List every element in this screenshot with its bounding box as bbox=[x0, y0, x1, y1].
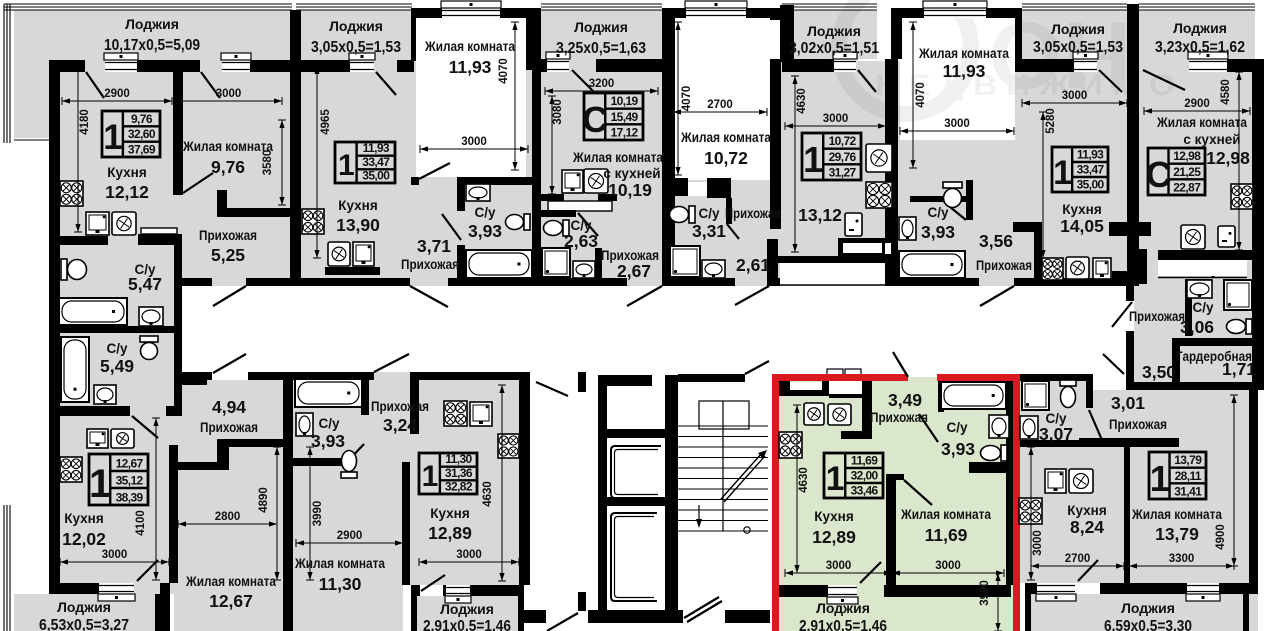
svg-text:Кухня: Кухня bbox=[107, 165, 146, 180]
svg-text:1: 1 bbox=[826, 460, 845, 498]
svg-text:3,06: 3,06 bbox=[1180, 317, 1214, 337]
svg-text:4630: 4630 bbox=[482, 481, 494, 507]
svg-text:С/у: С/у bbox=[946, 420, 968, 435]
svg-text:12,12: 12,12 bbox=[105, 182, 149, 202]
svg-text:Лоджия: Лоджия bbox=[574, 19, 628, 35]
svg-text:32,60: 32,60 bbox=[128, 127, 156, 141]
svg-text:33,47: 33,47 bbox=[1077, 163, 1105, 177]
svg-text:11,93: 11,93 bbox=[943, 61, 986, 81]
svg-text:3200: 3200 bbox=[589, 78, 615, 90]
svg-text:3990: 3990 bbox=[312, 501, 324, 527]
svg-text:2900: 2900 bbox=[1184, 98, 1210, 110]
svg-text:11,30: 11,30 bbox=[445, 452, 472, 466]
svg-text:11,93: 11,93 bbox=[1077, 148, 1104, 162]
svg-text:2800: 2800 bbox=[215, 511, 241, 523]
svg-text:Прихожая: Прихожая bbox=[1129, 309, 1185, 324]
svg-text:Прихожая: Прихожая bbox=[1109, 417, 1167, 432]
svg-text:Жилая комната: Жилая комната bbox=[918, 46, 1009, 61]
svg-text:4965: 4965 bbox=[320, 109, 332, 135]
svg-text:1: 1 bbox=[422, 460, 439, 493]
svg-text:5280: 5280 bbox=[1045, 108, 1057, 134]
svg-text:Лоджия: Лоджия bbox=[1121, 600, 1175, 616]
svg-text:Кухня: Кухня bbox=[1062, 202, 1101, 217]
svg-text:12,67: 12,67 bbox=[209, 591, 253, 611]
svg-text:3,93: 3,93 bbox=[921, 222, 955, 242]
svg-text:4630: 4630 bbox=[796, 88, 808, 114]
svg-text:11,93: 11,93 bbox=[363, 141, 390, 155]
svg-text:10,72: 10,72 bbox=[829, 134, 857, 148]
svg-text:3,49: 3,49 bbox=[888, 390, 922, 410]
svg-text:10,19: 10,19 bbox=[611, 94, 639, 108]
svg-text:32,00: 32,00 bbox=[851, 469, 879, 483]
svg-text:3,07: 3,07 bbox=[1039, 424, 1073, 444]
svg-text:Жилая комната: Жилая комната bbox=[185, 574, 276, 589]
svg-text:Прихожая: Прихожая bbox=[976, 258, 1032, 273]
svg-text:1: 1 bbox=[89, 462, 111, 506]
svg-text:С/у: С/у bbox=[474, 205, 496, 220]
svg-text:Прихожая: Прихожая bbox=[200, 420, 258, 435]
svg-text:5,49: 5,49 bbox=[100, 356, 134, 376]
svg-text:Жилая комната: Жилая комната bbox=[294, 556, 385, 571]
svg-text:3300: 3300 bbox=[1169, 553, 1195, 565]
svg-text:Кухня: Кухня bbox=[64, 511, 103, 526]
svg-text:2,91х0,5=1,46: 2,91х0,5=1,46 bbox=[423, 618, 511, 631]
svg-text:С/у: С/у bbox=[927, 205, 949, 220]
svg-text:Жилая комната: Жилая комната bbox=[424, 39, 515, 54]
svg-text:4900: 4900 bbox=[1215, 524, 1227, 550]
svg-text:3,05х0,5=1,53: 3,05х0,5=1,53 bbox=[311, 39, 401, 56]
svg-text:2,61: 2,61 bbox=[736, 255, 770, 275]
svg-text:Лоджия: Лоджия bbox=[807, 23, 861, 39]
svg-text:38,39: 38,39 bbox=[116, 491, 144, 505]
svg-text:35,00: 35,00 bbox=[362, 169, 390, 183]
svg-text:1: 1 bbox=[1053, 154, 1072, 192]
svg-text:4,94: 4,94 bbox=[212, 397, 246, 417]
svg-text:2700: 2700 bbox=[1065, 553, 1091, 565]
svg-text:11,69: 11,69 bbox=[925, 525, 968, 545]
svg-text:Прихожая: Прихожая bbox=[870, 410, 928, 425]
svg-text:Жилая комната: Жилая комната bbox=[1156, 115, 1247, 130]
svg-text:С/у: С/у bbox=[318, 416, 340, 431]
svg-text:Жилая комната: Жилая комната bbox=[680, 130, 771, 145]
svg-text:4070: 4070 bbox=[681, 86, 693, 112]
svg-text:3,24: 3,24 bbox=[383, 415, 417, 435]
svg-text:Прихожая: Прихожая bbox=[199, 228, 257, 243]
svg-text:31,36: 31,36 bbox=[445, 466, 473, 480]
svg-text:32,82: 32,82 bbox=[445, 480, 473, 494]
svg-text:28,11: 28,11 bbox=[1175, 469, 1202, 483]
svg-text:Кухня: Кухня bbox=[814, 509, 853, 524]
svg-text:3,93: 3,93 bbox=[311, 431, 345, 451]
svg-text:Прихожая: Прихожая bbox=[371, 399, 429, 414]
svg-text:Жилая комната: Жилая комната bbox=[572, 150, 663, 165]
svg-text:3000: 3000 bbox=[1062, 90, 1088, 102]
svg-text:12,89: 12,89 bbox=[428, 523, 472, 543]
svg-text:Лоджия: Лоджия bbox=[816, 600, 870, 616]
svg-text:31,27: 31,27 bbox=[829, 166, 857, 180]
svg-text:Лоджия: Лоджия bbox=[125, 16, 179, 32]
svg-text:с кухней: с кухней bbox=[603, 166, 660, 181]
svg-text:13,90: 13,90 bbox=[336, 215, 380, 235]
svg-text:21,25: 21,25 bbox=[1173, 165, 1201, 179]
svg-text:1: 1 bbox=[338, 149, 355, 182]
svg-text:13,12: 13,12 bbox=[798, 205, 842, 225]
svg-text:10,72: 10,72 bbox=[704, 148, 748, 168]
svg-text:6,59х0,5=3,30: 6,59х0,5=3,30 bbox=[1104, 618, 1192, 631]
svg-text:С: С bbox=[582, 99, 608, 140]
svg-text:3,50: 3,50 bbox=[1142, 362, 1176, 382]
svg-text:С/у: С/у bbox=[698, 206, 720, 221]
svg-text:1: 1 bbox=[803, 139, 823, 180]
svg-text:3000: 3000 bbox=[1032, 530, 1044, 556]
svg-text:4630: 4630 bbox=[798, 467, 810, 493]
svg-text:13,79: 13,79 bbox=[1155, 524, 1199, 544]
svg-text:2,63: 2,63 bbox=[564, 231, 598, 251]
svg-text:5,25: 5,25 bbox=[211, 245, 245, 265]
svg-text:Прихожая: Прихожая bbox=[401, 257, 459, 272]
svg-text:4100: 4100 bbox=[135, 510, 147, 536]
svg-text:Лоджия: Лоджия bbox=[329, 18, 383, 34]
svg-text:3,93: 3,93 bbox=[468, 221, 502, 241]
svg-text:10,17х0,5=5,09: 10,17х0,5=5,09 bbox=[104, 37, 200, 54]
svg-text:Лоджия: Лоджия bbox=[1173, 20, 1227, 36]
svg-text:Кухня: Кухня bbox=[430, 506, 469, 521]
svg-text:3,23х0,5=1,62: 3,23х0,5=1,62 bbox=[1155, 39, 1245, 56]
svg-text:С/у: С/у bbox=[1192, 300, 1214, 315]
svg-text:3000: 3000 bbox=[216, 88, 242, 100]
svg-text:6,53х0,5=3,27: 6,53х0,5=3,27 bbox=[39, 617, 129, 631]
svg-text:1: 1 bbox=[1150, 458, 1170, 499]
svg-text:33,47: 33,47 bbox=[362, 155, 390, 169]
svg-text:4580: 4580 bbox=[1220, 79, 1232, 105]
svg-text:13,79: 13,79 bbox=[1174, 453, 1202, 467]
svg-text:12,02: 12,02 bbox=[62, 529, 106, 549]
svg-text:3990: 3990 bbox=[979, 580, 991, 606]
svg-text:3000: 3000 bbox=[456, 549, 482, 561]
svg-text:Прихожая: Прихожая bbox=[725, 206, 781, 221]
svg-text:Лоджия: Лоджия bbox=[57, 599, 111, 615]
svg-text:3000: 3000 bbox=[823, 113, 849, 125]
svg-text:14,05: 14,05 bbox=[1060, 216, 1104, 236]
svg-text:Жилая комната: Жилая комната bbox=[900, 507, 991, 522]
svg-text:3,25х0,5=1,63: 3,25х0,5=1,63 bbox=[556, 40, 646, 57]
svg-text:4070: 4070 bbox=[498, 58, 510, 84]
svg-text:3,05х0,5=1,53: 3,05х0,5=1,53 bbox=[1033, 39, 1123, 56]
svg-text:3000: 3000 bbox=[102, 549, 128, 561]
svg-text:С/у: С/у bbox=[106, 341, 128, 356]
svg-text:2900: 2900 bbox=[104, 88, 130, 100]
svg-text:Кухня: Кухня bbox=[338, 198, 377, 213]
svg-text:Жилая комната: Жилая комната bbox=[1131, 507, 1222, 522]
svg-text:2,67: 2,67 bbox=[617, 261, 651, 281]
svg-text:3,56: 3,56 bbox=[979, 231, 1013, 251]
svg-text:35,00: 35,00 bbox=[1077, 178, 1105, 192]
svg-text:22,87: 22,87 bbox=[1173, 181, 1201, 195]
svg-text:С: С bbox=[1146, 154, 1172, 195]
svg-text:3,71: 3,71 bbox=[417, 236, 451, 256]
svg-text:с кухней: с кухней bbox=[1183, 132, 1240, 147]
svg-text:4070: 4070 bbox=[915, 82, 927, 108]
svg-text:3080: 3080 bbox=[552, 99, 564, 125]
svg-text:3000: 3000 bbox=[935, 560, 961, 572]
svg-text:11,69: 11,69 bbox=[851, 454, 878, 468]
svg-text:3000: 3000 bbox=[944, 118, 970, 130]
svg-text:4890: 4890 bbox=[258, 487, 270, 513]
svg-text:9,76: 9,76 bbox=[211, 157, 245, 177]
svg-text:2,91х0,5=1,46: 2,91х0,5=1,46 bbox=[799, 618, 887, 631]
svg-text:3,31: 3,31 bbox=[692, 221, 726, 241]
svg-text:Лоджия: Лоджия bbox=[1051, 21, 1105, 37]
svg-text:Жилая комната: Жилая комната bbox=[182, 139, 273, 154]
svg-text:29,76: 29,76 bbox=[829, 150, 857, 164]
svg-text:12,67: 12,67 bbox=[116, 457, 144, 471]
svg-text:31,41: 31,41 bbox=[1174, 485, 1202, 499]
svg-text:37,69: 37,69 bbox=[128, 143, 156, 157]
svg-text:4180: 4180 bbox=[79, 109, 91, 135]
svg-text:1,71: 1,71 bbox=[1222, 359, 1256, 379]
svg-text:3000: 3000 bbox=[461, 136, 487, 148]
svg-text:11,30: 11,30 bbox=[319, 574, 362, 594]
svg-text:5,47: 5,47 bbox=[128, 274, 162, 294]
svg-text:3,02х0,5=1,51: 3,02х0,5=1,51 bbox=[789, 40, 879, 57]
svg-text:11,93: 11,93 bbox=[449, 57, 492, 77]
svg-text:3,01: 3,01 bbox=[1111, 393, 1145, 413]
svg-text:10,19: 10,19 bbox=[608, 180, 652, 200]
svg-text:9,76: 9,76 bbox=[131, 112, 153, 126]
svg-text:15,49: 15,49 bbox=[611, 110, 639, 124]
svg-text:Лоджия: Лоджия bbox=[440, 601, 494, 617]
svg-text:3,93: 3,93 bbox=[941, 439, 975, 459]
svg-text:12,89: 12,89 bbox=[812, 527, 856, 547]
svg-text:33,46: 33,46 bbox=[851, 484, 879, 498]
svg-text:Кухня: Кухня bbox=[1067, 503, 1106, 518]
svg-text:17,12: 17,12 bbox=[611, 126, 639, 140]
svg-text:35,12: 35,12 bbox=[116, 474, 144, 488]
svg-text:12,98: 12,98 bbox=[1206, 148, 1250, 168]
svg-text:8,24: 8,24 bbox=[1070, 517, 1104, 537]
svg-text:3000: 3000 bbox=[826, 560, 852, 572]
svg-text:2900: 2900 bbox=[337, 530, 363, 542]
svg-text:12,98: 12,98 bbox=[1173, 149, 1201, 163]
svg-text:1: 1 bbox=[103, 118, 122, 157]
svg-text:2700: 2700 bbox=[707, 99, 733, 111]
